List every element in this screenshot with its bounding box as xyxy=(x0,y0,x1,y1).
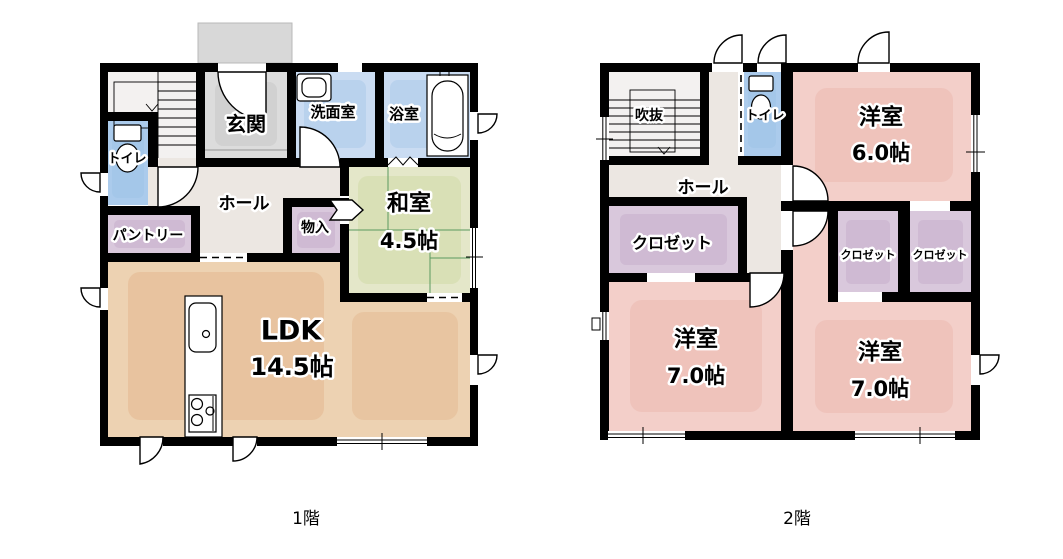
closet-large-label: クロゼット xyxy=(632,234,712,253)
bedroom6-window-arc xyxy=(858,32,889,63)
window-arc-ldk xyxy=(478,355,497,374)
ldk-door-arc-1 xyxy=(140,437,163,464)
window-arc-bath xyxy=(478,114,497,133)
ldk-label: LDK xyxy=(261,316,323,347)
genkan-label: 玄関 xyxy=(226,112,266,136)
closet-small2-label: クロゼット xyxy=(913,248,968,262)
bedroom7b-size: 7.0帖 xyxy=(851,377,909,401)
bathroom-label: 浴室 xyxy=(389,105,419,123)
bath-folding-door xyxy=(388,157,418,165)
window-arc-left-2 xyxy=(81,288,100,307)
balcony-door-arc xyxy=(714,35,742,63)
window-arc-left-1 xyxy=(81,173,100,192)
toilet-window-arc-2f xyxy=(758,35,786,63)
bedroom6-tint xyxy=(815,88,953,182)
closet-small1-label: クロゼット xyxy=(841,248,896,262)
hall-label-2f: ホール xyxy=(678,178,729,198)
washitsu-size: 4.5帖 xyxy=(380,229,438,253)
entrance-porch xyxy=(198,23,292,63)
bedroom6-size: 6.0帖 xyxy=(852,141,910,165)
floor2-caption: 2階 xyxy=(783,509,811,529)
toilet-label-2f: トイレ xyxy=(745,109,784,124)
bedroom7b-label: 洋室 xyxy=(858,340,902,366)
floorplan-page: 玄関 洗面室 浴室 トイレ ホール パントリー 物入 和室 4.5帖 LDK 1… xyxy=(0,0,1063,559)
window-arc-bedroom7b xyxy=(980,355,999,374)
bathtub-icon xyxy=(427,70,468,156)
ldk-door-arc-2 xyxy=(233,437,257,461)
kitchen-counter-icon xyxy=(185,296,222,437)
washroom-label: 洗面室 xyxy=(310,103,355,121)
floor1-caption: 1階 xyxy=(292,509,320,529)
storage-label: 物入 xyxy=(301,219,329,236)
bedroom7a-label: 洋室 xyxy=(674,327,718,353)
toilet-label-1f: トイレ xyxy=(107,152,146,167)
bedroom6-label: 洋室 xyxy=(859,105,903,131)
floor1-plan: 玄関 洗面室 浴室 トイレ ホール パントリー 物入 和室 4.5帖 LDK 1… xyxy=(81,23,497,529)
bedroom7a-size: 7.0帖 xyxy=(667,364,725,388)
void-label: 吹抜 xyxy=(635,107,664,124)
pantry-label: パントリー xyxy=(113,228,184,244)
hall2-corridor xyxy=(709,72,738,165)
hall-label-1f: ホール xyxy=(219,194,270,214)
ldk-tint-east xyxy=(352,312,458,420)
vanity-sink-icon xyxy=(297,74,331,101)
hall2-strip xyxy=(747,165,781,273)
ldk-size: 14.5帖 xyxy=(250,353,333,381)
bedroom7a-tint xyxy=(630,300,762,412)
washitsu-label: 和室 xyxy=(387,191,431,217)
floorplan-image: 玄関 洗面室 浴室 トイレ ホール パントリー 物入 和室 4.5帖 LDK 1… xyxy=(0,0,1063,559)
floor2-plan: 吹抜 トイレ ホール クロゼット クロゼット クロゼット 洋室 6.0帖 洋室 … xyxy=(592,32,999,529)
